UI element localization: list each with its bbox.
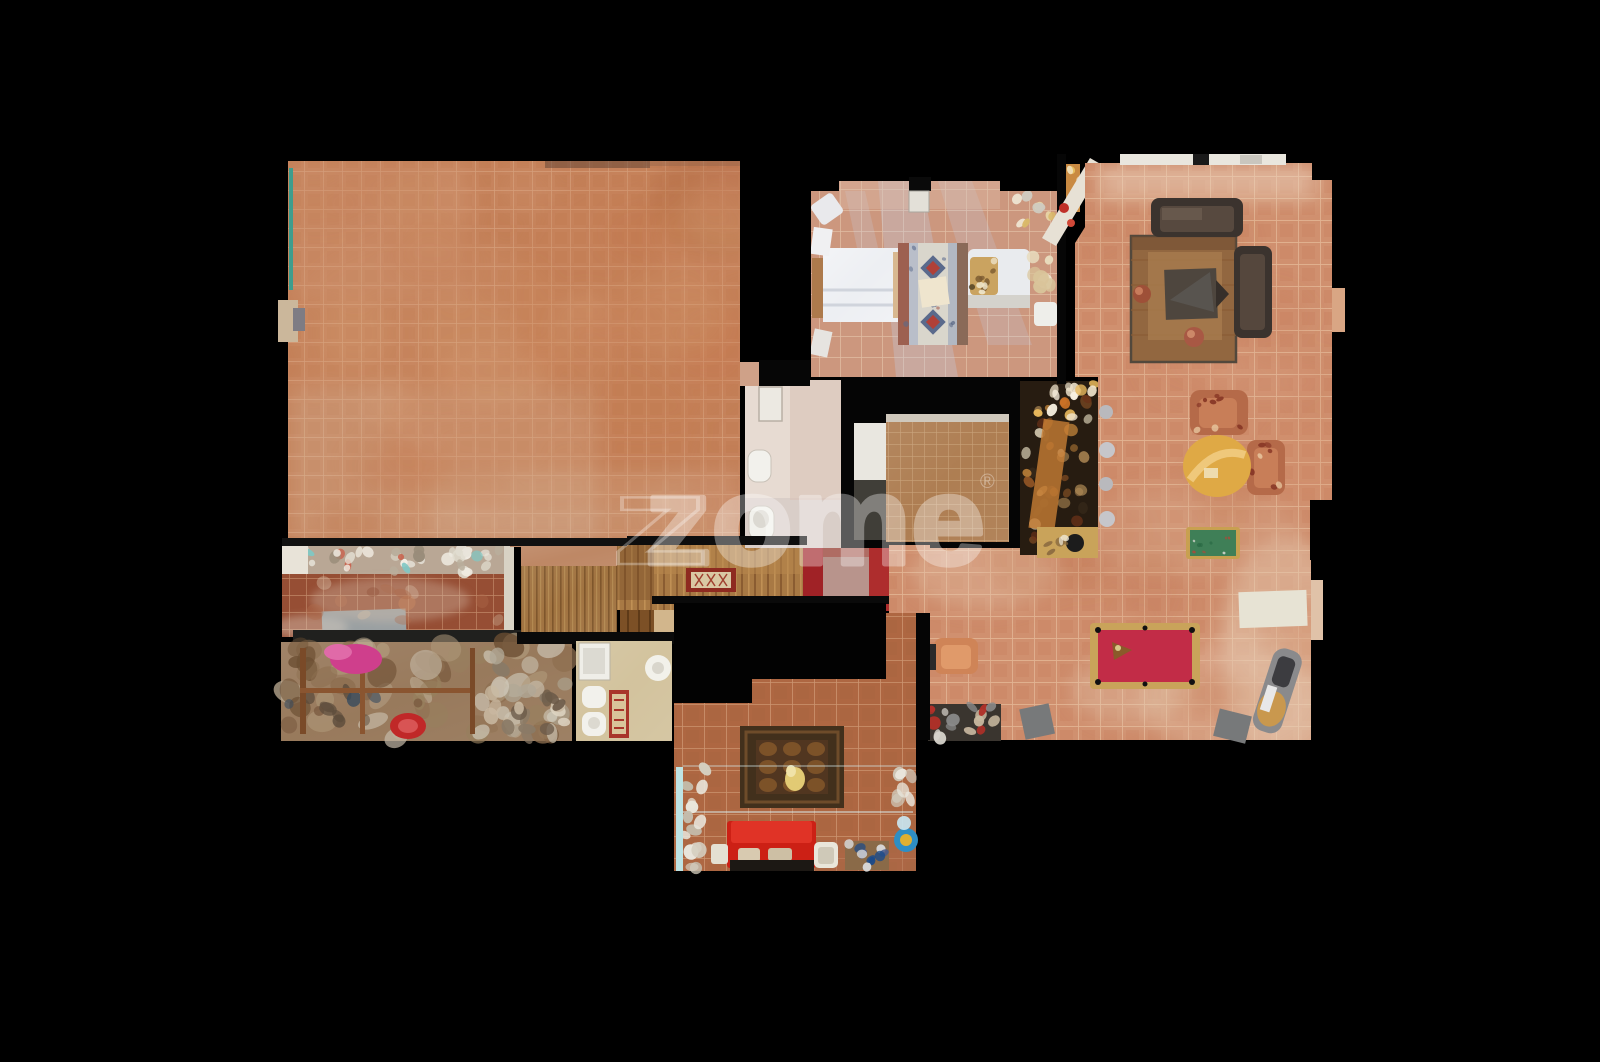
svg-text:zome: zome	[645, 450, 985, 591]
svg-text:®: ®	[980, 471, 995, 493]
